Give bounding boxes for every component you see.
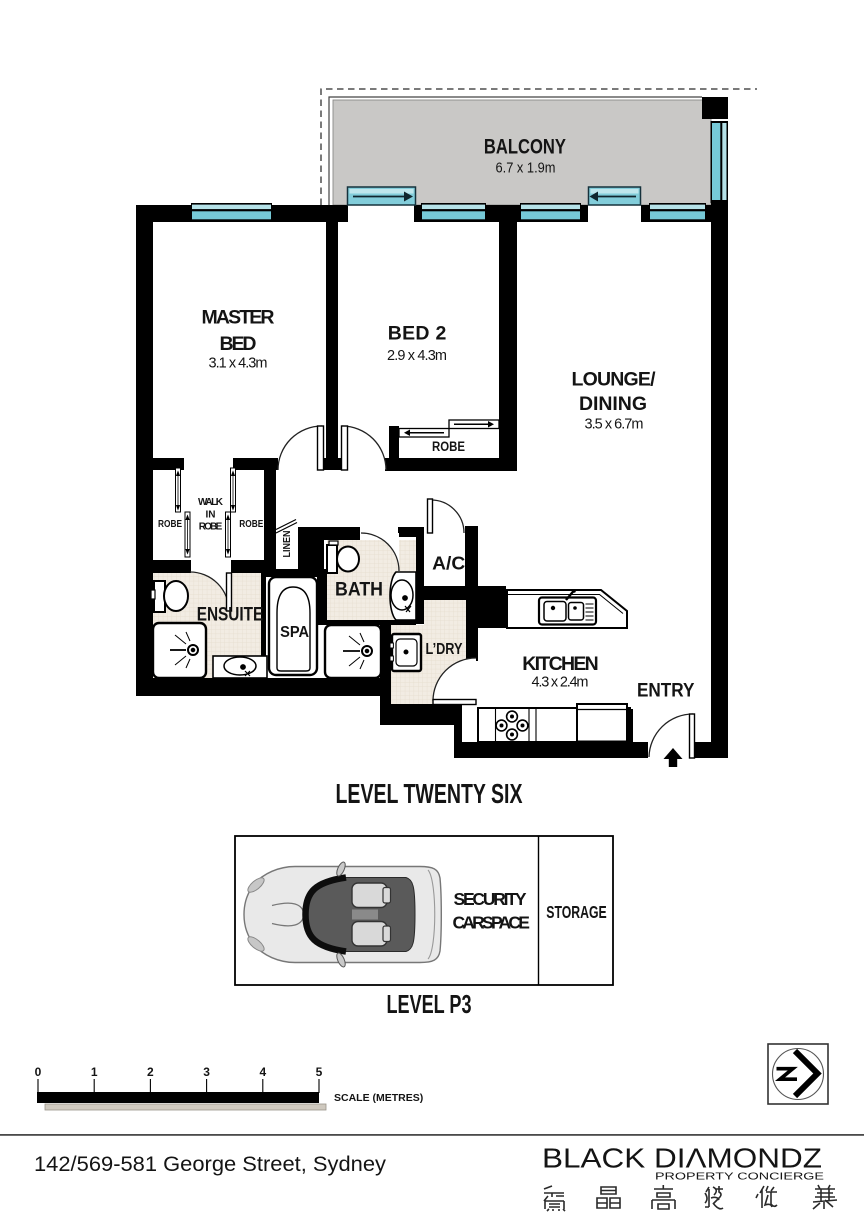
svg-text:2: 2 [147, 1065, 154, 1079]
svg-text:6.7 x 1.9m: 6.7 x 1.9m [496, 160, 556, 176]
svg-text:5: 5 [316, 1065, 323, 1079]
svg-text:3.5 x 6.7m: 3.5 x 6.7m [585, 417, 644, 433]
svg-text:A/C: A/C [432, 554, 465, 574]
svg-text:0: 0 [35, 1065, 42, 1079]
svg-text:SPA: SPA [280, 624, 309, 641]
svg-text:SCALE (METRES): SCALE (METRES) [334, 1092, 423, 1104]
svg-text:1: 1 [91, 1065, 98, 1079]
svg-text:2.9 x 4.3m: 2.9 x 4.3m [387, 348, 447, 364]
svg-text:ENSUITE: ENSUITE [197, 604, 264, 626]
svg-text:ENTRY: ENTRY [637, 680, 695, 702]
svg-text:LEVEL P3: LEVEL P3 [387, 989, 472, 1019]
svg-text:3: 3 [203, 1065, 210, 1079]
svg-text:DINING: DINING [579, 393, 647, 415]
svg-text:LOUNGE/: LOUNGE/ [572, 369, 657, 391]
svg-text:4: 4 [259, 1065, 266, 1079]
svg-text:3.1 x 4.3m: 3.1 x 4.3m [209, 356, 268, 372]
svg-text:4.3 x 2.4m: 4.3 x 2.4m [532, 675, 589, 691]
svg-text:IN: IN [206, 510, 216, 521]
svg-text:142/569-581 George Street, Syd: 142/569-581 George Street, Sydney [34, 1152, 386, 1176]
svg-text:KITCHEN: KITCHEN [522, 653, 599, 675]
svg-text:LINEN: LINEN [281, 531, 293, 558]
svg-text:BALCONY: BALCONY [484, 136, 566, 159]
svg-text:WALK: WALK [198, 497, 224, 508]
svg-text:PROPERTY CONCIERGE: PROPERTY CONCIERGE [655, 1172, 824, 1183]
svg-text:MASTER: MASTER [202, 307, 275, 329]
svg-text:ROBE: ROBE [158, 518, 182, 530]
svg-text:BATH: BATH [335, 579, 383, 601]
svg-text:ROBE: ROBE [239, 518, 263, 530]
svg-text:BED: BED [220, 333, 257, 355]
svg-text:BED 2: BED 2 [388, 323, 447, 345]
svg-text:BLACK DIΛMONDZ: BLACK DIΛMONDZ [542, 1143, 822, 1174]
svg-text:SECURITY: SECURITY [454, 889, 527, 909]
svg-text:L’DRY: L’DRY [426, 641, 463, 658]
svg-text:STORAGE: STORAGE [546, 902, 607, 922]
svg-text:ROBE: ROBE [432, 439, 465, 454]
svg-text:CARSPACE: CARSPACE [452, 913, 530, 933]
svg-text:ROBE: ROBE [199, 522, 223, 533]
svg-text:LEVEL TWENTY SIX: LEVEL TWENTY SIX [336, 778, 523, 809]
